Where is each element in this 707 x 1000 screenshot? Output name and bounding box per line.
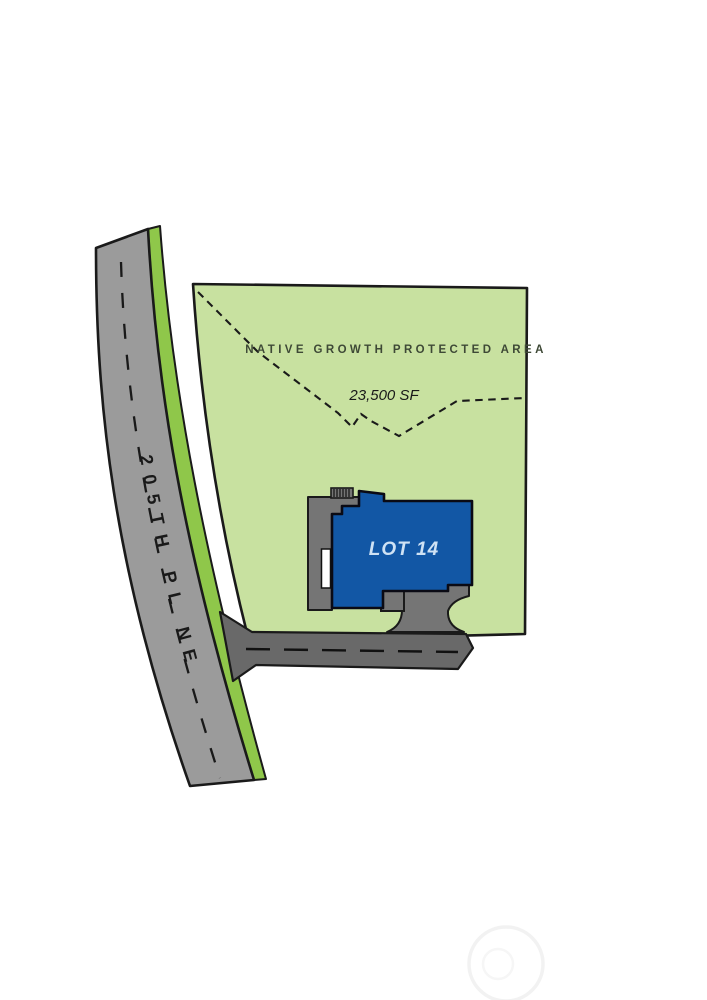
watermark-circle bbox=[469, 927, 543, 1000]
house-steps-hatch bbox=[331, 488, 353, 498]
site-plan-drawing: NATIVE GROWTH PROTECTED AREA 23,500 SF 2… bbox=[0, 0, 707, 1000]
site-plan-page: NATIVE GROWTH PROTECTED AREA 23,500 SF 2… bbox=[0, 0, 707, 1000]
lot-label: LOT 14 bbox=[369, 539, 439, 560]
protected-area-size-label: 23,500 SF bbox=[348, 387, 419, 404]
house-door-notch bbox=[322, 549, 331, 588]
protected-area-label: NATIVE GROWTH PROTECTED AREA bbox=[245, 344, 547, 356]
